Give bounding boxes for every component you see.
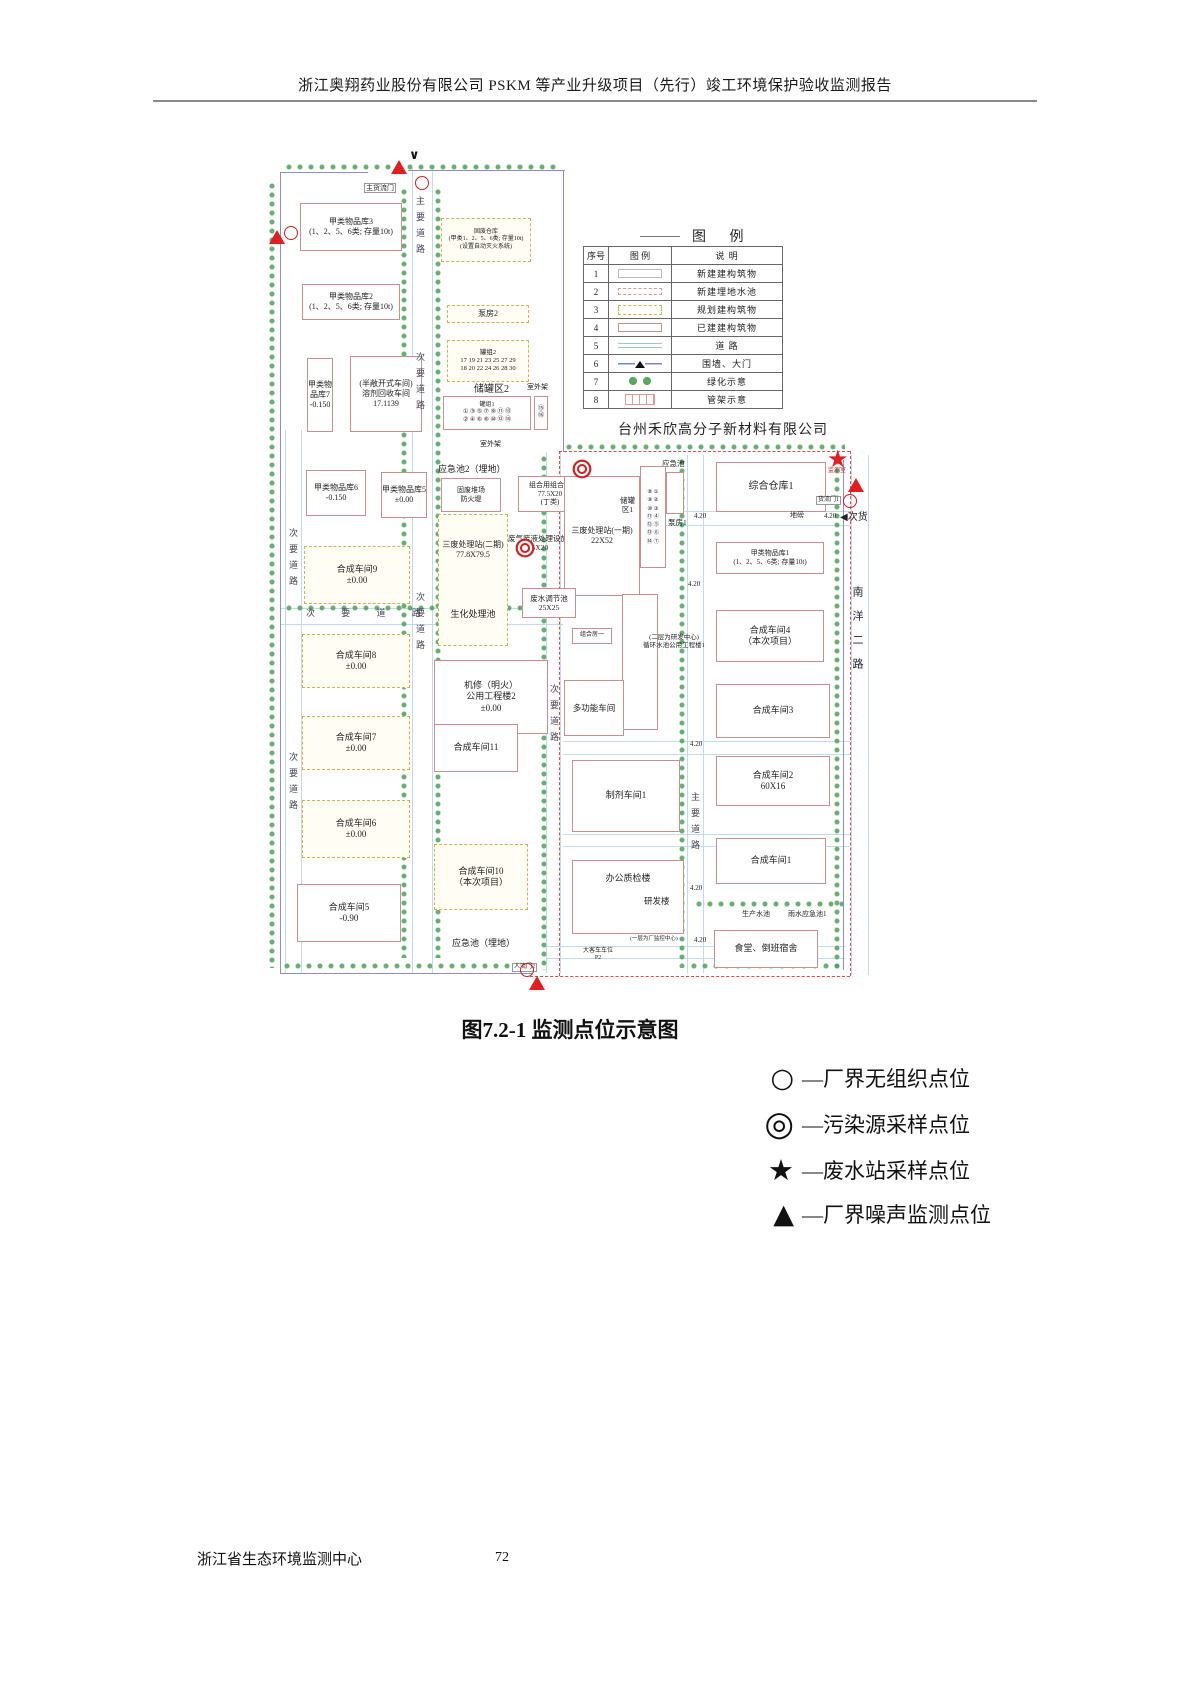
building-synthesis-4: 合成车间4 （本次项目） [716, 610, 824, 662]
building-canteen-dorm: 食堂、倒班宿舍 [714, 930, 818, 968]
arrow-left-icon: ◀ [840, 512, 848, 523]
footer-organization: 浙江省生态环境监测中心 [197, 1548, 362, 1569]
building-jia3: 甲类物品库3 (1、2、5、6类; 存量10t) [300, 203, 402, 251]
fence-north [280, 172, 368, 173]
footer-page-number: 72 [495, 1550, 509, 1566]
building-multifunction: 多功能车间 [564, 680, 624, 736]
fence-south-west [280, 973, 532, 974]
marker-legend-item-wastewater-station: ★ —废水站采样点位 [742, 1148, 970, 1192]
label-circulating-water-utility-1: (二层为研发中心) 循环水池公用工程楼1 [628, 634, 720, 650]
fenceline-point-icon [284, 226, 298, 240]
circle-marker-icon: ○ [742, 1065, 802, 1092]
elevation-mark: 4.20 [824, 512, 836, 520]
label-emergency-pool-2: 应急池2（埋地） [438, 464, 506, 475]
road-label-main: 主要道路 [414, 196, 427, 260]
pollution-source-point-icon [520, 543, 530, 553]
legend-no: 7 [584, 373, 609, 391]
legend-desc: 道 路 [672, 337, 783, 355]
building-synthesis-8: 合成车间8 ±0.00 [302, 634, 410, 688]
road-label-secondary: 次要道路 [287, 528, 300, 592]
legend-desc: 已建建构筑物 [672, 319, 783, 337]
star-marker-icon: ★ [742, 1156, 802, 1185]
road-label-secondary: 次要道路 [414, 592, 427, 656]
label-outdoor-rack: 室外架 [480, 440, 501, 448]
vegetation-row [695, 900, 843, 909]
site-plan: 图 例 序号 图 例 说 明 1 新建建构筑物 2 新建埋地水池 3 规划建构筑… [0, 0, 1190, 1010]
fence-west [280, 172, 281, 973]
elevation-mark: 4.20 [688, 580, 700, 588]
building-solid-waste-yard: 固废堆场 防火堤 [441, 478, 501, 512]
building-synthesis-6: 合成车间6 ±0.00 [302, 800, 410, 858]
building-solid-waste-warehouse: 固废仓库 (甲类1、2、5、6类; 存量10t) (设置自动灭火系统) [441, 218, 531, 262]
legend-row: 8 管架示意 [584, 391, 783, 409]
road-label-secondary: 次要道路 [287, 752, 300, 816]
legend-title: 图 例 [640, 226, 754, 246]
legend-swatch-existing [609, 319, 672, 337]
building-synthesis-3: 合成车间3 [716, 684, 830, 738]
marker-legend-item-pollution-source: ◎ —污染源采样点位 [742, 1102, 970, 1146]
company-name-right: 台州禾欣高分子新材料有限公司 [608, 423, 838, 440]
label-bus-parking: 大客车车位 P2 [583, 948, 613, 962]
label-rainwater-emergency-pool: 雨水应急池1 [788, 910, 827, 918]
building-synthesis-9: 合成车间9 ±0.00 [304, 546, 410, 604]
legend-row: 4 已建建构筑物 [584, 319, 783, 337]
marker-legend-item-fenceline: ○ —厂界无组织点位 [742, 1056, 970, 1100]
building-tank-group-1: 罐组1 ① ③ ⑤ ⑦ ⑨ ⑪ ⑬ ② ④ ⑥ ⑧ ⑩ ⑫ ⑭ [443, 396, 531, 430]
building-synthesis-7: 合成车间7 ±0.00 [302, 716, 410, 770]
vegetation-row [833, 458, 842, 970]
label-tank-area-2: 储罐区2 [474, 384, 509, 396]
building-synthesis-1: 合成车间1 [716, 838, 826, 884]
legend-desc: 绿化示意 [672, 373, 783, 391]
boundary-south [530, 976, 850, 977]
building-synthesis-11: 合成车间11 [434, 724, 518, 772]
legend-row: 3 规划建构筑物 [584, 301, 783, 319]
legend-swatch-buried-pool [609, 283, 672, 301]
building-jia5: 甲类物品库5 ±0.00 [381, 472, 427, 518]
marker-legend-item-noise: ▲ —厂界噪声监测点位 [742, 1192, 991, 1236]
elevation-mark: 4.20 [690, 884, 702, 892]
legend-desc: 围墙、大门 [672, 355, 783, 373]
legend-header-no: 序号 [584, 247, 609, 265]
label-monitor-center-note: (一层为厂监控中心) [630, 936, 678, 943]
label-emergency-pool-buried: 应急池（埋地） [452, 938, 515, 949]
building-synthesis-2: 合成车间2 60X16 [716, 756, 830, 806]
gate-goods-1: 货流门1 [816, 496, 841, 505]
fenceline-point-icon [415, 176, 429, 190]
building-wastewater-adjust-pool: 废水调节池 25X25 [522, 588, 576, 618]
noise-monitor-point-icon [529, 976, 545, 990]
legend-no: 1 [584, 265, 609, 283]
fence-north [408, 170, 565, 171]
legend-no: 5 [584, 337, 609, 355]
building-tank-15-16: ⑮ ⑯ [534, 396, 548, 430]
building-comprehensive-warehouse-1: 综合仓库1 [716, 462, 826, 512]
gate-main-goods: 主货流门 [364, 183, 396, 193]
double-circle-marker-icon: ◎ [742, 1107, 802, 1141]
legend-header-row: 序号 图 例 说 明 [584, 247, 783, 265]
legend-row: 7 绿化示意 [584, 373, 783, 391]
label-production-water-pool: 生产水池 [742, 910, 770, 918]
building-combo-house-1: 组合房一 [572, 628, 612, 644]
legend-swatch-wall-gate [609, 355, 672, 373]
marker-legend-label: —污染源采样点位 [802, 1109, 970, 1139]
building-utility-2: 机修（明火） 公用工程楼2 ±0.00 [434, 660, 548, 734]
elevation-mark: 4.20 [694, 512, 706, 520]
label-tank-area-1: 储罐 区1 [620, 496, 635, 514]
label-pump-house-1: 泵房1 [668, 518, 687, 527]
building-preparation-1: 制剂车间1 [572, 760, 680, 832]
building-three-waste-station-1: 三废处理站(一期) 22X52 [564, 476, 640, 596]
vegetation-row [283, 962, 533, 971]
elevation-mark: 4.20 [690, 740, 702, 748]
road-label-south: 南洋二路 [849, 586, 865, 682]
legend-table: 序号 图 例 说 明 1 新建建构筑物 2 新建埋地水池 3 规划建构筑物 4 … [583, 246, 783, 409]
building-jia2: 甲类物品库2 (1、2、5、6类; 存量10t) [302, 284, 400, 320]
building-pump-house-2: 泵房2 [447, 305, 529, 323]
fenceline-point-icon [843, 494, 857, 508]
road [851, 455, 869, 975]
legend-row: 2 新建埋地水池 [584, 283, 783, 301]
building-tank-group-2: 罐组2 17 19 21 23 25 27 29 18 20 22 24 26 … [447, 340, 529, 382]
legend-desc: 新建埋地水池 [672, 283, 783, 301]
legend-swatch-road [609, 337, 672, 355]
noise-monitor-point-icon [848, 478, 864, 492]
building-jia7: 甲类物品库7 -0.150 [307, 358, 333, 432]
building-pump-1-box [666, 472, 684, 514]
building-synthesis-5: 合成车间5 -0.90 [297, 884, 401, 942]
road [563, 741, 850, 755]
label-rd-building: 研发楼 [644, 896, 670, 906]
north-gate-arrow-icon: ∨ [409, 148, 420, 163]
legend-no: 2 [584, 283, 609, 301]
marker-legend-label: —厂界无组织点位 [802, 1063, 970, 1093]
noise-monitor-point-icon [269, 230, 285, 244]
road-label-secondary: 次要道路 [548, 684, 561, 748]
marker-legend-label: —废水站采样点位 [802, 1155, 970, 1185]
legend-desc: 新建建构筑物 [672, 265, 783, 283]
legend-no: 4 [584, 319, 609, 337]
gate-secondary-goods-label: 次货 [848, 512, 868, 523]
fenceline-point-icon [520, 963, 534, 977]
fence-east-inner [843, 460, 844, 970]
road-label-main: 主要道路 [689, 792, 702, 856]
building-circulating-water-utility-1 [622, 594, 658, 730]
fence-east-upper [563, 170, 564, 452]
label-outdoor-rack: 室外架 [527, 383, 548, 391]
legend-title-line [640, 236, 680, 237]
building-tank-area-1-numbers: ⑧ ① ⑨ ② ⑩ ③ ⑪ ④ ⑫ ⑤ ⑬ ⑥ ⑭ ⑦ [640, 466, 666, 568]
legend-swatch-greenery [609, 373, 672, 391]
figure-caption: 图7.2-1 监测点位示意图 [380, 1014, 760, 1044]
legend-desc: 规划建构筑物 [672, 301, 783, 319]
building-jia6: 甲类物品库6 -0.150 [306, 470, 366, 516]
legend-swatch-new-building [609, 265, 672, 283]
gate-arrow-icon [635, 361, 645, 368]
boundary-north-right [559, 451, 850, 452]
label-weighbridge: 地磅 [790, 511, 804, 519]
road-label-secondary-horizontal: 次 要 道 路 [306, 608, 433, 619]
noise-monitor-point-icon [391, 160, 407, 174]
vegetation-row [268, 182, 277, 968]
legend-row: 6 围墙、大门 [584, 355, 783, 373]
building-solvent-recovery: (半敞开式车间) 溶剂回收车间 17.1139 [350, 356, 422, 432]
legend-title-text: 图 例 [692, 226, 754, 246]
marker-legend-label: —厂界噪声监测点位 [802, 1199, 991, 1229]
road [687, 455, 704, 973]
triangle-marker-icon: ▲ [742, 1201, 802, 1228]
building-synthesis-10: 合成车间10 （本次项目） [434, 844, 528, 910]
legend-row: 5 道 路 [584, 337, 783, 355]
road-label-secondary: 次要道路 [414, 352, 427, 416]
road [412, 168, 433, 973]
legend-row: 1 新建建构筑物 [584, 265, 783, 283]
wastewater-station-point-icon: ★ [827, 447, 849, 471]
legend-swatch-pipe-rack [609, 391, 672, 409]
pollution-source-point-icon [577, 464, 587, 474]
legend-no: 8 [584, 391, 609, 409]
legend-no: 6 [584, 355, 609, 373]
legend-no: 3 [584, 301, 609, 319]
legend-header-desc: 说 明 [672, 247, 783, 265]
label-biochemical-pool: 生化处理池 [450, 609, 495, 620]
boundary-east [850, 451, 851, 976]
legend-swatch-planned [609, 301, 672, 319]
elevation-mark: 4.20 [694, 936, 706, 944]
legend-header-symbol: 图 例 [609, 247, 672, 265]
gate-secondary-goods: ◀次货 [840, 512, 868, 524]
building-jia1: 甲类物品库1 (1、2、5、6类; 存量10t) [716, 542, 824, 574]
legend-desc: 管架示意 [672, 391, 783, 409]
